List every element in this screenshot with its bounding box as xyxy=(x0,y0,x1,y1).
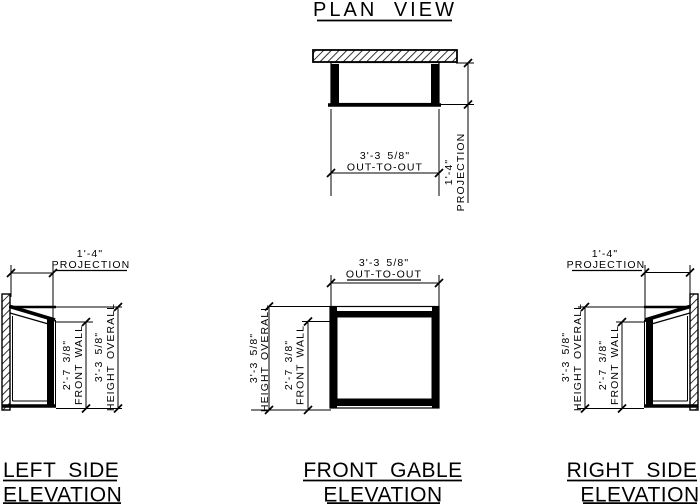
plan-view-title: PLAN VIEW xyxy=(313,0,457,21)
right-elevation-title-line1: RIGHT SIDE xyxy=(567,459,698,482)
front-gable-elevation: 3'-3 5/8" OUT-TO-OUT 3'-3 5/8" HEIGHT OV… xyxy=(248,257,443,414)
left-elevation-title-line2: ELEVATION xyxy=(3,484,122,504)
front-dim-height-label: HEIGHT OVERALL xyxy=(259,304,271,412)
view-titles: LEFT SIDE ELEVATION FRONT GABLE ELEVATIO… xyxy=(3,459,700,504)
right-house-wall-hatch xyxy=(690,294,698,410)
left-roof-slope xyxy=(10,307,55,321)
left-dim-height-value: 3'-3 5/8" xyxy=(93,332,105,382)
plan-dim-width-value: 3'-3 5/8" xyxy=(360,150,410,162)
front-elevation-title-line2: ELEVATION xyxy=(323,484,442,504)
plan-view: PLAN VIEW 3'-3 5/8" OUT-TO-OUT 1'-4" PRO… xyxy=(313,0,474,211)
front-floor-band xyxy=(337,399,432,406)
right-dim-projection-label: PROJECTION xyxy=(567,259,646,271)
right-side-elevation: 1'-4" PROJECTION 2'-7 3/8" FRONT WALL 3'… xyxy=(560,248,698,413)
left-front-wall xyxy=(47,319,54,407)
right-roof-slope xyxy=(645,307,690,321)
plan-roof-overhang-hatch xyxy=(313,50,457,62)
front-right-wall xyxy=(432,307,439,408)
front-roof-fascia xyxy=(337,311,432,317)
front-dim-width-value: 3'-3 5/8" xyxy=(359,257,409,269)
front-elevation-title-line1: FRONT GABLE xyxy=(303,459,462,482)
right-front-wall xyxy=(646,319,653,407)
plan-dim-width-label: OUT-TO-OUT xyxy=(347,162,423,174)
plan-dim-projection-value: 1'-4" xyxy=(443,159,455,185)
right-dim-front-wall-label: FRONT WALL xyxy=(609,325,621,405)
left-dim-projection-label: PROJECTION xyxy=(52,259,131,271)
left-elevation-title-line1: LEFT SIDE xyxy=(3,459,119,482)
plan-left-wall xyxy=(331,64,339,103)
right-dim-front-wall-value: 2'-7 3/8" xyxy=(597,340,609,390)
left-side-elevation: 1'-4" PROJECTION 2'-7 3/8" FRONT WALL 3'… xyxy=(2,248,130,413)
front-dim-front-wall-label: FRONT WALL xyxy=(295,325,307,405)
front-left-wall xyxy=(331,307,338,408)
right-dim-height-value: 3'-3 5/8" xyxy=(560,332,572,382)
front-dim-front-wall-value: 2'-7 3/8" xyxy=(283,340,295,390)
drawing-sheet: PLAN VIEW 3'-3 5/8" OUT-TO-OUT 1'-4" PRO… xyxy=(0,0,700,504)
plan-dim-projection-label: PROJECTION xyxy=(455,133,467,212)
front-structure-outline xyxy=(330,307,439,409)
plan-structure-outline xyxy=(331,63,439,104)
front-dim-width-label: OUT-TO-OUT xyxy=(346,269,422,281)
left-dim-front-wall-value: 2'-7 3/8" xyxy=(61,340,73,390)
left-dim-front-wall-label: FRONT WALL xyxy=(73,325,85,405)
right-elevation-title-line2: ELEVATION xyxy=(580,484,699,504)
left-house-wall-hatch xyxy=(2,294,10,410)
left-dim-height-label: HEIGHT OVERALL xyxy=(105,303,117,411)
right-dim-height-label: HEIGHT OVERALL xyxy=(572,303,584,411)
plan-right-wall xyxy=(431,64,439,103)
